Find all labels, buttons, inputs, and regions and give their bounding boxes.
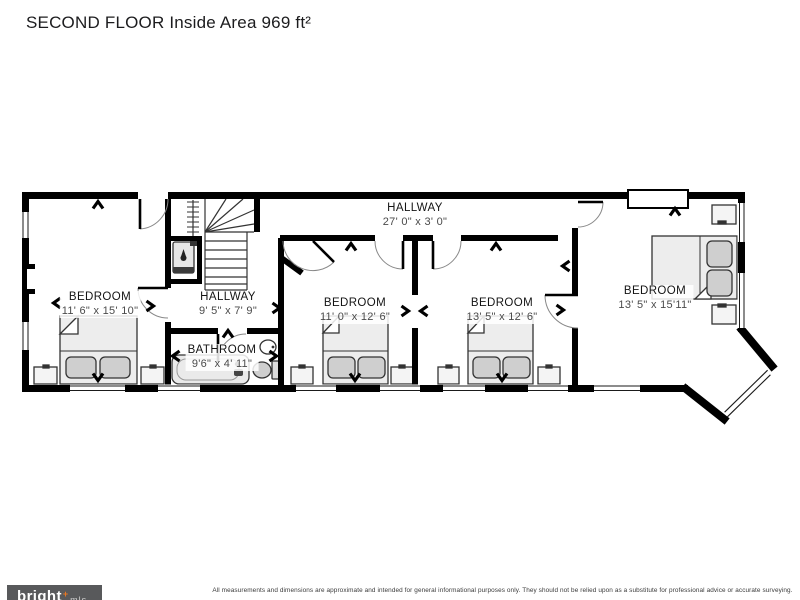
room-label-bathroom: BATHROOM 9'6" x 4' 11" <box>186 344 259 371</box>
floor-plan: HALLWAY 27' 0" x 3' 0" BEDROOM 11' 6" x … <box>0 0 800 600</box>
chevron-up-icon <box>670 209 680 216</box>
room-label-bedroom-mid-left: BEDROOM 11' 0" x 12' 6" <box>318 297 392 324</box>
room-dimensions: 9'6" x 4' 11" <box>188 358 257 371</box>
door <box>138 288 168 318</box>
room-label-bedroom-left: BEDROOM 11' 6" x 15' 10" <box>60 291 141 318</box>
chevron-up-icon <box>223 331 233 338</box>
chevron-right-icon <box>557 305 564 315</box>
bay-window <box>725 370 771 417</box>
sink <box>260 340 276 354</box>
brand-logo-accent-icon: + <box>63 589 68 599</box>
bed <box>323 316 388 384</box>
brand-logo: bright+mls <box>7 585 102 600</box>
chevron-right-icon <box>402 306 409 316</box>
room-label-bedroom-right: BEDROOM 13' 5" x 15'11" <box>616 285 693 312</box>
chevron-right-icon <box>270 351 277 361</box>
room-label-hallway-main: HALLWAY 27' 0" x 3' 0" <box>381 202 450 229</box>
room-name: HALLWAY <box>383 202 448 216</box>
chevron-left-icon <box>421 306 428 316</box>
door <box>375 241 403 269</box>
chevron-up-icon <box>491 244 501 251</box>
bed <box>60 316 137 384</box>
room-dimensions: 11' 0" x 12' 6" <box>320 311 390 324</box>
door <box>433 241 461 269</box>
room-dimensions: 11' 6" x 15' 10" <box>62 305 139 318</box>
water-heater <box>173 242 194 273</box>
room-dimensions: 13' 5" x 12' 6" <box>467 311 538 324</box>
door <box>140 199 168 229</box>
brand-logo-suffix: mls <box>70 595 87 600</box>
chevron-up-icon <box>93 202 103 209</box>
room-label-bedroom-mid-right: BEDROOM 13' 5" x 12' 6" <box>465 297 540 324</box>
chevron-right-icon <box>147 301 154 311</box>
floor-plan-page: SECOND FLOOR Inside Area 969 ft² <box>0 0 800 600</box>
brand-logo-text: bright <box>17 588 62 600</box>
room-name: BEDROOM <box>467 297 538 311</box>
bed <box>468 316 533 384</box>
room-name: BEDROOM <box>62 291 139 305</box>
room-name: HALLWAY <box>199 291 257 305</box>
chevron-up-icon <box>346 244 356 251</box>
room-name: BEDROOM <box>618 285 691 299</box>
room-dimensions: 27' 0" x 3' 0" <box>383 216 448 229</box>
chevron-left-icon <box>563 261 570 271</box>
room-dimensions: 9' 5" x 7' 9" <box>199 305 257 318</box>
room-dimensions: 13' 5" x 15'11" <box>618 299 691 312</box>
room-name: BEDROOM <box>320 297 390 311</box>
room-name: BATHROOM <box>188 344 257 358</box>
disclaimer-text: All measurements and dimensions are appr… <box>210 587 795 594</box>
room-label-hallway-upper: HALLWAY 9' 5" x 7' 9" <box>197 291 259 318</box>
door <box>578 202 603 227</box>
